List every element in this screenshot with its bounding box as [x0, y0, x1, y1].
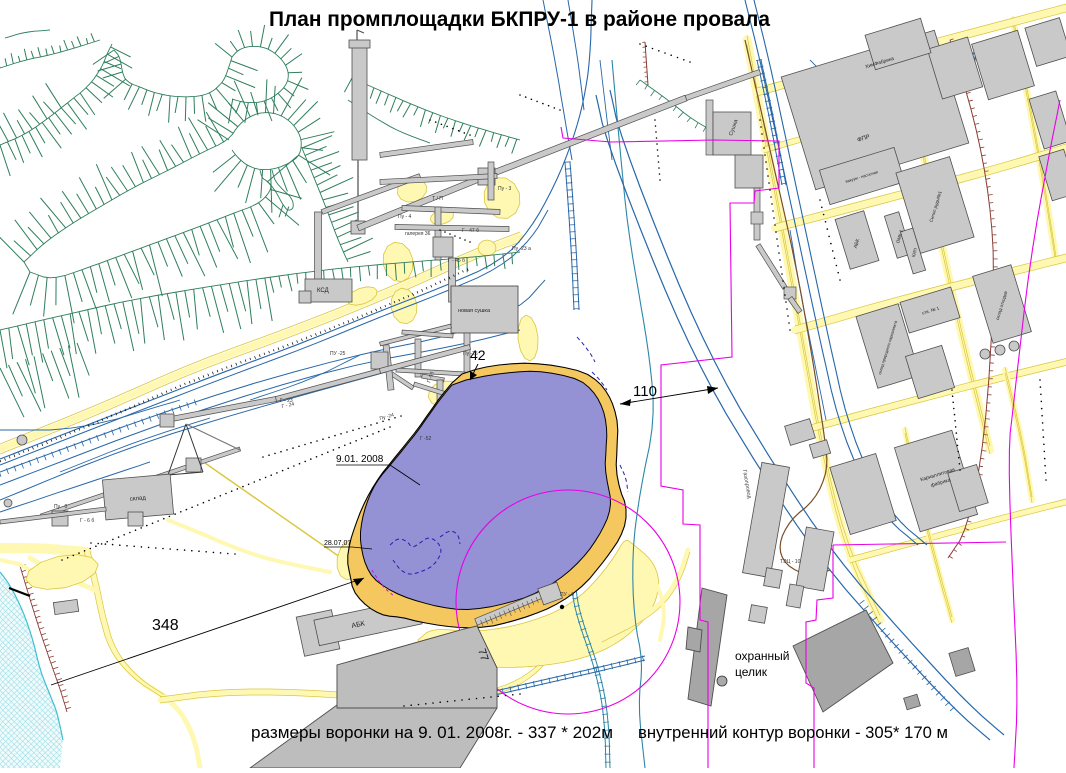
svg-text:ПУ -25: ПУ -25: [330, 351, 346, 357]
svg-text:размеры воронки на 9. 01. 200: размеры воронки на 9. 01. 2008г. - 337 *…: [251, 723, 613, 742]
svg-text:110: 110: [633, 383, 657, 400]
svg-text:План промплощадки БКПРУ-1 в: План промплощадки БКПРУ-1 в районе прова…: [269, 8, 770, 31]
svg-text:Г - 6 б: Г - 6 б: [80, 518, 94, 524]
svg-text:КСД: КСД: [317, 288, 329, 294]
svg-text:Пу - 3: Пу - 3: [498, 186, 512, 192]
svg-text:ПУ - 6: ПУ - 6: [560, 592, 574, 598]
svg-text:9.01. 2008: 9.01. 2008: [336, 454, 384, 465]
svg-text:Пу - 4: Пу - 4: [398, 214, 412, 220]
svg-text:28.07.07: 28.07.07: [324, 540, 351, 547]
svg-text:охранный: охранный: [735, 649, 789, 663]
svg-text:Г - 47 б: Г - 47 б: [462, 228, 479, 234]
svg-text:внутренний контур воронки - 30: внутренний контур воронки - 305* 170 м: [638, 723, 948, 742]
svg-text:Т / П: Т / П: [432, 196, 443, 202]
svg-text:Г - 45 б: Г - 45 б: [448, 258, 465, 264]
svg-text:галерея 36: галерея 36: [405, 231, 431, 237]
svg-text:Пу - 0: Пу - 0: [54, 504, 68, 510]
svg-text:348: 348: [152, 617, 179, 634]
svg-text:Пу -23 а: Пу -23 а: [512, 246, 531, 252]
svg-text:новая сушка: новая сушка: [458, 308, 491, 314]
svg-text:ТЭЦ - 10: ТЭЦ - 10: [780, 559, 801, 565]
svg-text:Г -52: Г -52: [420, 436, 432, 442]
svg-text:целик: целик: [735, 665, 768, 679]
svg-text:Пу -25: Пу -25: [463, 351, 478, 357]
